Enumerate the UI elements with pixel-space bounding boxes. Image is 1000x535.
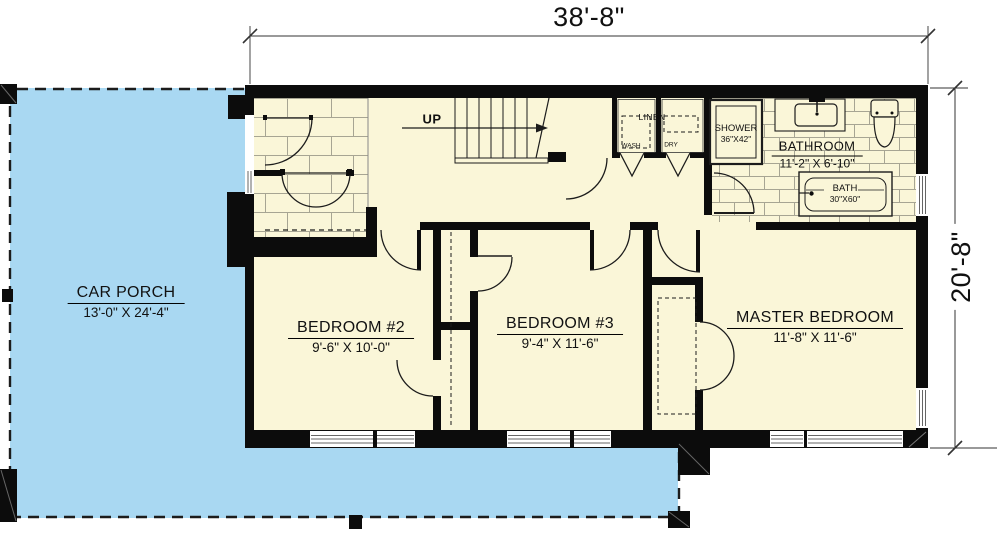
- bathroom-size: 11'-2" X 6'-10": [772, 156, 863, 170]
- shower-label: SHOWER 36"X42": [715, 124, 758, 144]
- bedroom3-label: BEDROOM #3 9'-4" X 11'-6": [497, 315, 623, 351]
- master-bedroom-name: MASTER BEDROOM: [727, 309, 903, 329]
- bath-size: 30"X60": [830, 195, 861, 205]
- window-bedroom2: [310, 431, 415, 447]
- entry-opening: [245, 115, 254, 194]
- car-porch-size: 13'-0" X 24'-4": [68, 304, 185, 320]
- wash-label: WASH: [621, 142, 640, 149]
- master-bedroom-size: 11'-8" X 11'-6": [727, 329, 903, 345]
- shower-size: 36"X42": [715, 135, 758, 145]
- linen-label: LINEN: [638, 113, 665, 123]
- window-bedroom3: [507, 431, 611, 447]
- dimension-width-label: 38'-8": [546, 2, 632, 32]
- bathroom-label: BATHROOM 11'-2" X 6'-10": [772, 140, 863, 171]
- stairs-up-label: UP: [422, 113, 441, 128]
- bedroom2-name: BEDROOM #2: [288, 319, 414, 339]
- sink-icon: [775, 98, 845, 131]
- bathroom-name: BATHROOM: [772, 140, 863, 157]
- bedroom3-size: 9'-4" X 11'-6": [497, 335, 623, 351]
- dry-label: DRY: [664, 141, 678, 148]
- window-master-bottom: [770, 431, 903, 447]
- bedroom2-size: 9'-6" X 10'-0": [288, 339, 414, 355]
- car-porch-name: CAR PORCH: [68, 284, 185, 304]
- car-porch-label: CAR PORCH 13'-0" X 24'-4": [68, 284, 185, 320]
- master-bedroom-label: MASTER BEDROOM 11'-8" X 11'-6": [727, 309, 903, 345]
- window-bathroom: [916, 174, 928, 216]
- floor-plan: 38'-8" 20'-8" CAR PORCH 13'-0" X 24'-4" …: [0, 0, 1000, 535]
- window-master-right: [916, 388, 928, 428]
- bath-label: BATH 30"X60": [830, 184, 861, 204]
- dimension-height-label: 20'-8": [946, 224, 976, 310]
- bedroom2-label: BEDROOM #2 9'-6" X 10'-0": [288, 319, 414, 355]
- bedroom3-name: BEDROOM #3: [497, 315, 623, 335]
- floor-plan-drawing: [0, 0, 1000, 535]
